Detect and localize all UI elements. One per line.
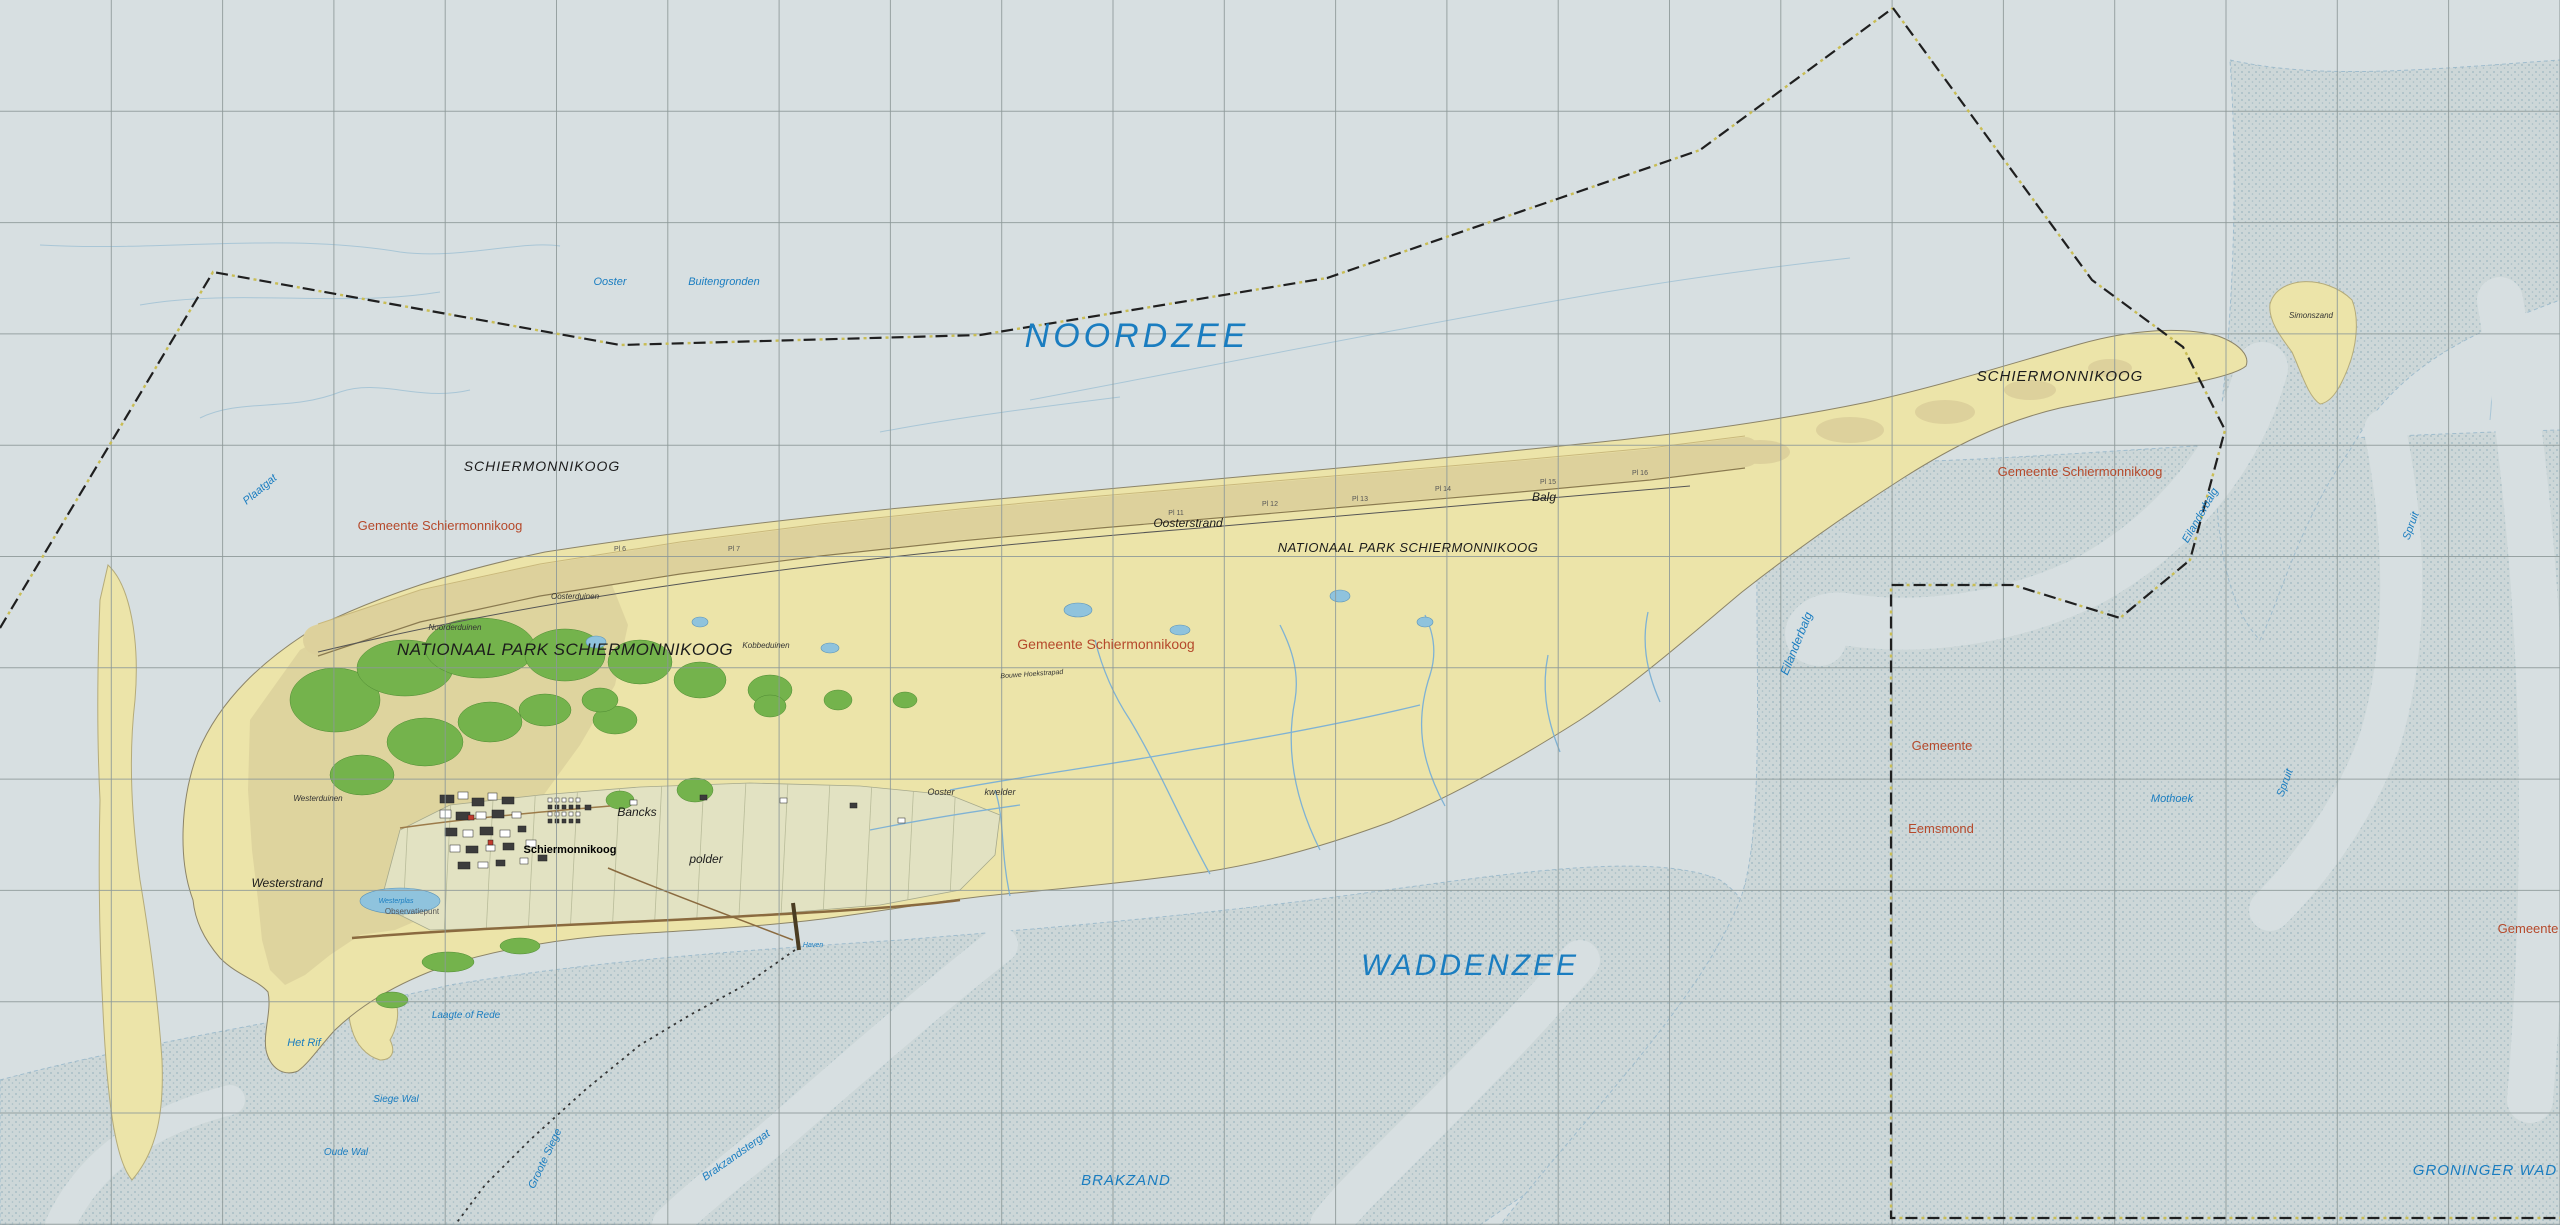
building xyxy=(445,828,457,836)
building xyxy=(496,860,505,866)
map-label-46-pl-7: Pl 7 xyxy=(728,546,740,553)
map-label-41-eemsmond: Eemsmond xyxy=(1908,821,1974,836)
map-label-1-waddenzee: WADDENZEE xyxy=(1361,949,1579,982)
map-label-31-ooster: Ooster xyxy=(927,787,955,797)
map-label-9-oude-wal: Oude Wal xyxy=(324,1147,369,1158)
building xyxy=(576,798,580,802)
map-label-48-pl-12: Pl 12 xyxy=(1262,501,1278,508)
building xyxy=(440,795,454,803)
building xyxy=(480,827,493,835)
building xyxy=(520,858,528,864)
building xyxy=(569,798,573,802)
map-label-30-kobbeduinen: Kobbeduinen xyxy=(742,641,790,650)
building xyxy=(780,798,787,803)
building xyxy=(576,805,580,809)
map-label-21-schiermonnikoog: SCHIERMONNIKOOG xyxy=(1977,368,2144,385)
building xyxy=(548,812,552,816)
building xyxy=(898,818,905,823)
building xyxy=(463,830,473,837)
map-label-26-balg: Balg xyxy=(1532,490,1556,504)
building xyxy=(576,819,580,823)
building xyxy=(518,826,526,832)
building xyxy=(576,812,580,816)
building xyxy=(458,792,468,799)
building xyxy=(548,798,552,802)
building xyxy=(488,793,497,800)
map-label-39-gemeente-schiermonnikoog: Gemeente Schiermonnikoog xyxy=(1998,464,2163,479)
map-label-50-pl-14: Pl 14 xyxy=(1435,486,1451,493)
map-label-5-buitengronden: Buitengronden xyxy=(688,276,760,288)
map-label-47-pl-11: Pl 11 xyxy=(1168,510,1184,517)
building xyxy=(562,812,566,816)
map-label-35-polder: polder xyxy=(688,852,723,866)
map-label-8-siege-wal: Siege Wal xyxy=(373,1094,419,1105)
topographic-map-schiermonnikoog: NOORDZEEWADDENZEEBRAKZANDGRONINGER WADOo… xyxy=(0,0,2560,1225)
map-label-7-laagte-of-rede: Laagte of Rede xyxy=(432,1010,501,1021)
map-label-37-gemeente-schiermonnikoog: Gemeente Schiermonnikoog xyxy=(358,518,523,533)
map-label-38-gemeente-schiermonnikoog: Gemeente Schiermonnikoog xyxy=(1017,636,1194,652)
building xyxy=(486,845,495,851)
building xyxy=(569,819,573,823)
building xyxy=(492,810,504,818)
building xyxy=(500,830,510,837)
map-label-45-pl-6: Pl 6 xyxy=(614,546,626,553)
map-label-24-oosterstrand: Oosterstrand xyxy=(1153,516,1223,530)
building xyxy=(548,819,552,823)
building xyxy=(458,862,470,869)
map-label-32-kwelder: kwelder xyxy=(984,787,1016,797)
map-label-3-groninger-wad: GRONINGER WAD xyxy=(2413,1162,2557,1179)
map-label-49-pl-13: Pl 13 xyxy=(1352,496,1368,503)
map-label-29-westerduinen: Westerduinen xyxy=(293,794,343,803)
building xyxy=(466,846,478,853)
building xyxy=(468,815,474,820)
building xyxy=(562,805,566,809)
building xyxy=(569,812,573,816)
map-label-51-pl-15: Pl 15 xyxy=(1540,479,1556,486)
map-label-12-mothoek: Mothoek xyxy=(2151,793,2194,805)
map-label-28-noorderduinen: Noorderduinen xyxy=(429,623,482,632)
map-label-36-schiermonnikoog: Schiermonnikoog xyxy=(524,844,617,856)
map-label-42-gemeente: Gemeente xyxy=(2498,921,2559,936)
map-label-19-het-rif: Het Rif xyxy=(287,1037,322,1049)
building xyxy=(850,803,857,808)
building xyxy=(585,805,591,810)
building xyxy=(488,840,493,845)
building xyxy=(476,812,486,819)
building xyxy=(502,797,514,804)
building xyxy=(478,862,488,868)
building xyxy=(503,843,514,850)
building xyxy=(700,795,707,800)
map-canvas: NOORDZEEWADDENZEEBRAKZANDGRONINGER WADOo… xyxy=(0,0,2560,1225)
map-label-33-simonszand: Simonszand xyxy=(2289,311,2334,320)
map-label-23-nationaal-park-schiermonnikoog: NATIONAAL PARK SCHIERMONNIKOOG xyxy=(1278,540,1539,555)
map-label-4-ooster: Ooster xyxy=(593,276,627,288)
map-label-2-brakzand: BRAKZAND xyxy=(1081,1172,1171,1189)
map-label-43-observatiepunt: Observatiepunt xyxy=(385,907,440,916)
building xyxy=(472,798,484,806)
map-label-0-noordzee: NOORDZEE xyxy=(1025,317,1250,355)
building xyxy=(450,845,460,852)
map-label-25-westerstrand: Westerstrand xyxy=(251,876,322,890)
building xyxy=(562,819,566,823)
map-label-34-bancks: Bancks xyxy=(617,805,656,819)
map-label-18-westerplas: Westerplas xyxy=(379,898,414,905)
map-label-22-nationaal-park-schiermonnikoog: NATIONAAL PARK SCHIERMONNIKOOG xyxy=(397,640,733,659)
map-label-52-pl-16: Pl 16 xyxy=(1632,470,1648,477)
map-label-40-gemeente: Gemeente xyxy=(1912,738,1973,753)
map-label-27-oosterduinen: Oosterduinen xyxy=(551,592,600,601)
map-label-17-haven: Haven xyxy=(803,942,823,949)
building xyxy=(512,812,521,818)
map-label-20-schiermonnikoog: SCHIERMONNIKOOG xyxy=(464,458,621,474)
building xyxy=(569,805,573,809)
building xyxy=(562,798,566,802)
building xyxy=(548,805,552,809)
